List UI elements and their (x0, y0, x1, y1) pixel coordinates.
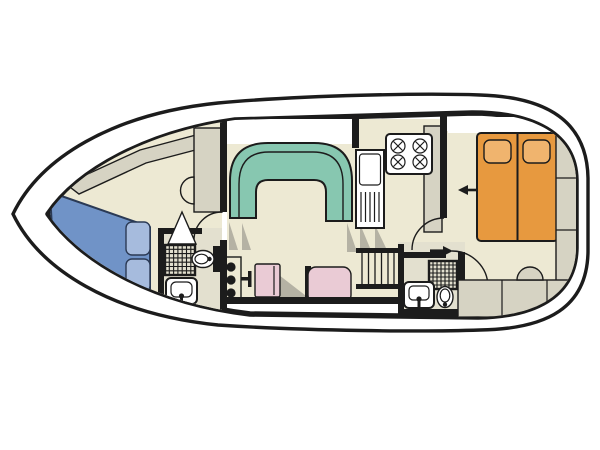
aft-washbasin (404, 282, 434, 308)
floor-plan-svg (0, 0, 600, 450)
aft-toilet (437, 287, 453, 308)
aft-bed-pillow-1 (484, 140, 511, 163)
interior (50, 116, 578, 317)
forward-toilet (192, 251, 214, 268)
wall-bow-saloon-upper (220, 116, 227, 212)
aft-bed-pillow-2 (523, 140, 550, 163)
wall-saloon-galley (352, 116, 359, 148)
v-berth-pillow-2 (126, 259, 150, 292)
stove (386, 134, 432, 174)
saloon-window-band (227, 119, 353, 144)
helm-seat (255, 264, 280, 297)
boat-floor-plan (0, 0, 600, 450)
stern-side-cabinet-column (556, 128, 578, 282)
bow-corner-cabinet (194, 128, 222, 212)
aft-double-bed (477, 133, 558, 241)
galley-sink (356, 150, 384, 228)
v-berth-pillow-1 (126, 222, 150, 255)
wall-galley-aftcabin (440, 116, 447, 218)
wall-saloon-bottom (222, 297, 402, 304)
